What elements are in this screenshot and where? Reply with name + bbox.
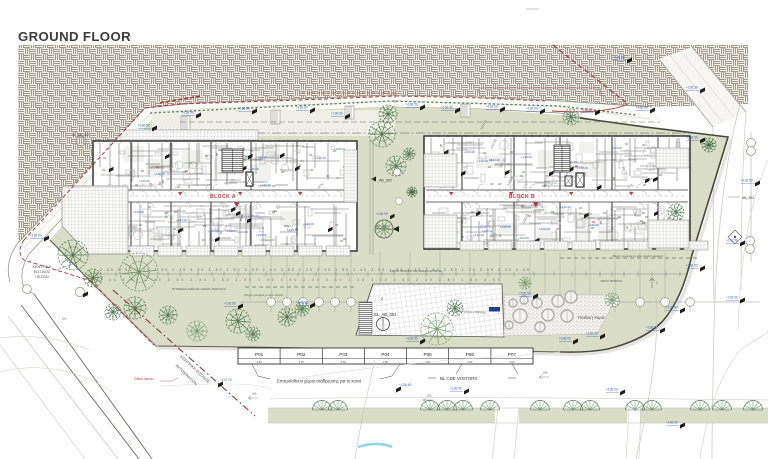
svg-text:2.40 3.50 1.20 3.50 2.40 3.30: 2.40 3.50 1.20 3.50 2.40 3.30 3.50 1.50 … bbox=[100, 268, 531, 272]
svg-text:P05: P05 bbox=[424, 352, 433, 357]
svg-text:+140.00: +140.00 bbox=[260, 183, 271, 187]
svg-text:+136.50: +136.50 bbox=[406, 337, 418, 341]
svg-text:4.50: 4.50 bbox=[467, 360, 473, 364]
svg-text:+140.00: +140.00 bbox=[154, 172, 165, 176]
svg-text:AB_303: AB_303 bbox=[742, 196, 754, 200]
svg-text:+140.00: +140.00 bbox=[248, 167, 259, 171]
svg-text:Επιπρόσθετοι χώροι στάθμευσης: Επιπρόσθετοι χώροι στάθμευσης για το κοι… bbox=[277, 379, 362, 384]
svg-text:P06: P06 bbox=[466, 352, 475, 357]
svg-text:Παιδική Χαρά: Παιδική Χαρά bbox=[578, 315, 605, 320]
svg-text:+140.00: +140.00 bbox=[256, 155, 267, 159]
svg-text:+137.70: +137.70 bbox=[220, 378, 232, 382]
svg-text:Οδικό Δίκτυο: Οδικό Δίκτυο bbox=[134, 377, 153, 381]
svg-text:+140.00: +140.00 bbox=[477, 159, 488, 163]
svg-text:+140.00: +140.00 bbox=[139, 179, 150, 183]
svg-text:+136.50: +136.50 bbox=[686, 264, 698, 268]
svg-text:+140.00: +140.00 bbox=[464, 150, 475, 154]
svg-text:+136.60: +136.60 bbox=[399, 383, 411, 387]
svg-text:2.40 3.50 1.20 3.50 2.40 3.30: 2.40 3.50 1.20 3.50 2.40 3.30 3.50 1.50 … bbox=[100, 278, 503, 282]
svg-text:+140.00: +140.00 bbox=[237, 230, 248, 234]
svg-text:+136.50: +136.50 bbox=[646, 326, 658, 330]
svg-text:+140.00: +140.00 bbox=[476, 225, 487, 229]
svg-text:+140.00: +140.00 bbox=[248, 214, 259, 218]
svg-text:4.50: 4.50 bbox=[383, 360, 389, 364]
svg-text:+140.00: +140.00 bbox=[315, 156, 326, 160]
svg-text:4.50: 4.50 bbox=[509, 360, 515, 364]
svg-text:+136.50: +136.50 bbox=[636, 106, 648, 110]
svg-text:4.50: 4.50 bbox=[341, 360, 347, 364]
svg-text:+140.00: +140.00 bbox=[539, 227, 550, 231]
svg-text:+136.50: +136.50 bbox=[741, 179, 753, 183]
svg-text:+136.50: +136.50 bbox=[526, 107, 538, 111]
svg-text:β: β bbox=[656, 281, 658, 285]
svg-text:+138.90: +138.90 bbox=[376, 212, 388, 216]
svg-text:ΦΥΤΕΜΕΝΟ ΔΩΜΑ ΜΕ ΧΑΜΗΛΗ ΒΛΑΣΤΗ: ΦΥΤΕΜΕΝΟ ΔΩΜΑ ΜΕ ΧΑΜΗΛΗ ΒΛΑΣΤΗΣΗ bbox=[172, 287, 226, 291]
svg-text:+140.00: +140.00 bbox=[287, 228, 298, 232]
svg-text:BL_AB_: BL_AB_ bbox=[376, 225, 389, 229]
svg-text:P01: P01 bbox=[255, 352, 264, 357]
svg-text:P03: P03 bbox=[339, 352, 348, 357]
svg-text:GROUND FLOOR: GROUND FLOOR bbox=[18, 29, 131, 44]
svg-text:+136.50: +136.50 bbox=[666, 421, 678, 425]
svg-text:+140.00: +140.00 bbox=[500, 225, 511, 229]
svg-text:_AB_302: _AB_302 bbox=[376, 179, 392, 183]
svg-text:+136.50: +136.50 bbox=[686, 86, 698, 90]
svg-text:+140.00: +140.00 bbox=[521, 155, 532, 159]
svg-text:4.50: 4.50 bbox=[299, 360, 305, 364]
svg-text:+136.50: +136.50 bbox=[331, 112, 343, 116]
svg-text:+140.00: +140.00 bbox=[176, 218, 187, 222]
svg-text:Οδηγός φωτισμός με κάτω λάμπες: Οδηγός φωτισμός με κάτω λάμπες bbox=[244, 293, 284, 297]
svg-text:+136.50: +136.50 bbox=[296, 106, 308, 110]
svg-text:+136.50: +136.50 bbox=[613, 56, 625, 60]
svg-text:+136.50: +136.50 bbox=[450, 387, 462, 391]
svg-text:ΧΩΡΟΣ ΠΡΑΣΙΝΟΥ: ΧΩΡΟΣ ΠΡΑΣΙΝΟΥ bbox=[600, 279, 623, 283]
svg-text:BL_AB_301: BL_AB_301 bbox=[374, 312, 397, 317]
svg-text:P02: P02 bbox=[297, 352, 306, 357]
svg-text:+136.50: +136.50 bbox=[296, 301, 308, 305]
svg-text:0%: 0% bbox=[543, 371, 548, 375]
svg-text:+136.50: +136.50 bbox=[138, 124, 150, 128]
svg-text:+136.50: +136.50 bbox=[441, 106, 453, 110]
svg-text:BL CDE VISITORS: BL CDE VISITORS bbox=[440, 376, 477, 381]
svg-text:ΚΕΝΤΡΙΚΗ: ΚΕΝΤΡΙΚΗ bbox=[33, 265, 52, 269]
svg-text:+136.50: +136.50 bbox=[486, 105, 498, 109]
svg-text:ΕΙΣΟΔΟΣ: ΕΙΣΟΔΟΣ bbox=[34, 270, 51, 274]
svg-text:+140.00: +140.00 bbox=[577, 166, 588, 170]
svg-text:+140.00: +140.00 bbox=[588, 223, 599, 227]
svg-text:+140.00: +140.00 bbox=[303, 222, 314, 226]
svg-text:+136.50: +136.50 bbox=[406, 103, 418, 107]
svg-text:+136.50: +136.50 bbox=[238, 107, 250, 111]
svg-text:+136.50: +136.50 bbox=[30, 234, 42, 238]
svg-text:+136.50: +136.50 bbox=[726, 239, 738, 243]
svg-text:ΧΩΡΟΣ ΠΡΑΣΙΝΟΥ ΜΕ ΧΑΜΗΛΗ ΦΥΤΕΥ: ΧΩΡΟΣ ΠΡΑΣΙΝΟΥ ΜΕ ΧΑΜΗΛΗ ΦΥΤΕΥΣΗ bbox=[390, 269, 442, 273]
svg-text:P04: P04 bbox=[381, 352, 390, 357]
svg-text:ΠΕΖΩΝ: ΠΕΖΩΝ bbox=[35, 275, 48, 279]
svg-text:+136.50: +136.50 bbox=[586, 332, 598, 336]
svg-text:+140.00: +140.00 bbox=[256, 233, 267, 237]
svg-text:BL_AB_302: BL_AB_302 bbox=[72, 133, 89, 137]
svg-text:+140.00: +140.00 bbox=[560, 205, 571, 209]
svg-text:+136.50: +136.50 bbox=[581, 108, 593, 112]
svg-text:+136.50: +136.50 bbox=[726, 296, 738, 300]
svg-text:+140.00: +140.00 bbox=[334, 147, 345, 151]
svg-text:+140.00: +140.00 bbox=[611, 146, 622, 150]
svg-text:Οδηγός φωτισμός με κάτω λάμπες: Οδηγός φωτισμός με κάτω λάμπες χαμηλούς bbox=[612, 254, 664, 258]
svg-text:+136.50: +136.50 bbox=[224, 302, 236, 306]
svg-text:+140.00: +140.00 bbox=[208, 229, 219, 233]
svg-text:0%: 0% bbox=[252, 392, 257, 396]
svg-text:+136.50: +136.50 bbox=[686, 136, 698, 140]
svg-text:0%: 0% bbox=[62, 317, 67, 321]
svg-text:+140.00: +140.00 bbox=[489, 158, 500, 162]
svg-text:4.50: 4.50 bbox=[257, 360, 263, 364]
svg-text:+136.50: +136.50 bbox=[519, 292, 531, 296]
svg-text:+140.00: +140.00 bbox=[473, 233, 484, 237]
svg-text:+136.50: +136.50 bbox=[606, 388, 618, 392]
svg-text:BLOCK A: BLOCK A bbox=[210, 194, 236, 200]
svg-text:+140.00: +140.00 bbox=[133, 210, 144, 214]
svg-text:+136.50: +136.50 bbox=[182, 111, 194, 115]
svg-text:+136.50: +136.50 bbox=[559, 337, 571, 341]
svg-text:+136.50: +136.50 bbox=[666, 306, 678, 310]
